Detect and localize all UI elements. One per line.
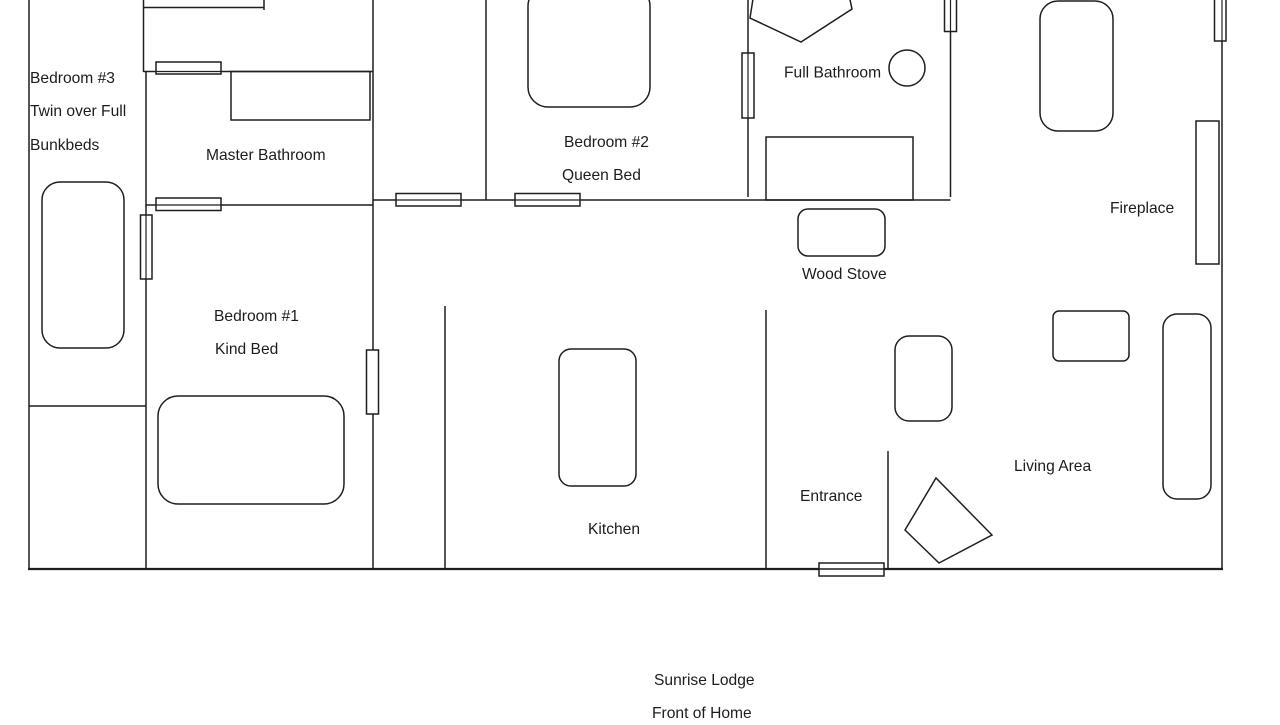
svg-text:Queen Bed: Queen Bed xyxy=(562,167,641,184)
svg-text:Wood Stove: Wood Stove xyxy=(802,266,887,283)
svg-text:Fireplace: Fireplace xyxy=(1110,200,1174,217)
svg-text:Kind Bed: Kind Bed xyxy=(215,341,278,358)
svg-text:Bunkbeds: Bunkbeds xyxy=(30,137,100,154)
svg-text:Front of Home: Front of Home xyxy=(652,705,752,720)
svg-text:Bedroom #3: Bedroom #3 xyxy=(30,70,115,87)
svg-text:Bedroom #1: Bedroom #1 xyxy=(214,308,299,325)
svg-text:Kitchen: Kitchen xyxy=(588,521,640,538)
svg-text:Twin over Full: Twin over Full xyxy=(30,103,126,120)
svg-text:Full Bathroom: Full Bathroom xyxy=(784,65,881,82)
svg-text:Entrance: Entrance xyxy=(800,488,862,505)
svg-text:Sunrise Lodge: Sunrise Lodge xyxy=(654,672,755,689)
svg-text:Master Bathroom: Master Bathroom xyxy=(206,147,326,164)
svg-text:Living Area: Living Area xyxy=(1014,458,1091,475)
svg-text:Bedroom #2: Bedroom #2 xyxy=(564,134,649,151)
